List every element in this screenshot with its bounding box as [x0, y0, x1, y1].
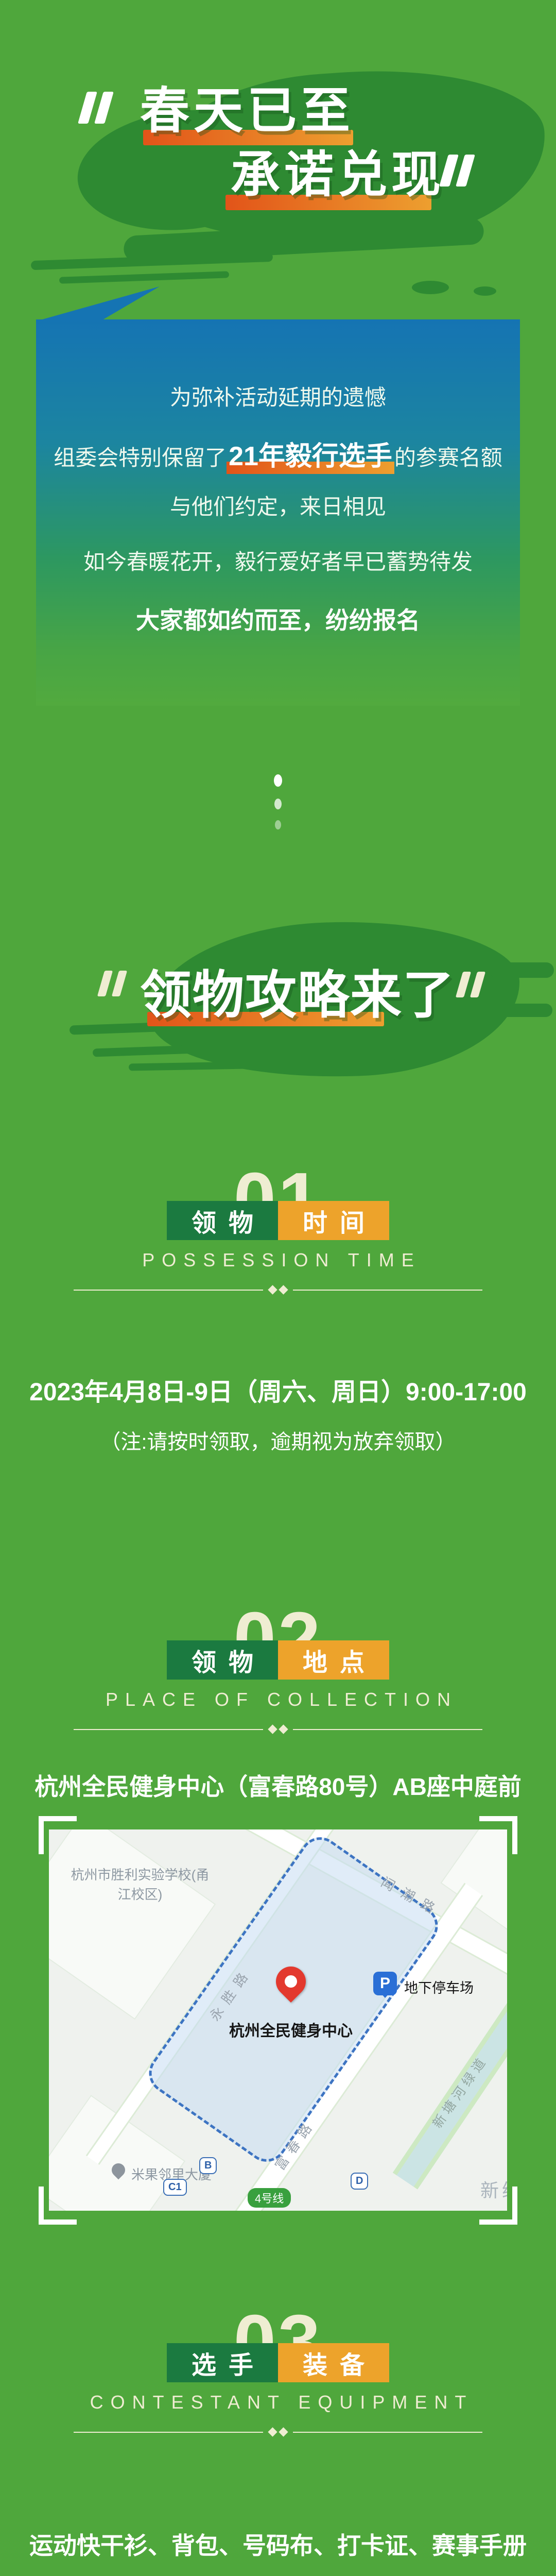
section-tag-right: 时间 [278, 1201, 389, 1240]
section-tag-left: 选手 [167, 2343, 278, 2382]
pickup-time-note: （注:请按时领取，逾期视为放弃领取） [0, 1425, 556, 1455]
close-quote-icon [444, 155, 471, 187]
section-header-03: 03 选手 装备 CONTESTANT EQUIPMENT [0, 2304, 556, 2435]
section-tags: 选手 装备 [167, 2343, 389, 2382]
section-divider [74, 1726, 482, 1733]
map-label-xinlv: 新绿 [480, 2176, 507, 2202]
metro-exit-c1: C1 [163, 2179, 187, 2196]
dot [275, 820, 281, 829]
speech-tail [39, 286, 160, 320]
map[interactable]: 杭州市胜利实验学校(甬江校区) 闻潮路 永胜路 富春路 新塘河绿道 新绿 杭州全… [49, 1829, 507, 2211]
section-subtitle: PLACE OF COLLECTION [98, 1689, 458, 1710]
intro-line2-suffix: 的参赛名额 [394, 446, 502, 470]
intro-line: 组委会特别保留了21年毅行选手的参赛名额 [36, 434, 520, 473]
open-quote-icon [101, 971, 124, 996]
intro-highlight: 21年毅行选手 [227, 434, 394, 473]
map-label-school: 杭州市胜利实验学校(甬江校区) [71, 1866, 210, 1904]
metro-line-badge: 4号线 [248, 2188, 291, 2208]
brush-stroke [412, 281, 449, 294]
section-divider [74, 1286, 482, 1293]
brush-stroke [59, 271, 229, 284]
dot [274, 799, 282, 809]
map-label-parking: 地下停车场 [404, 1977, 474, 1997]
parking-pin-icon[interactable]: P [373, 1972, 397, 1995]
section-tag-left: 领物 [167, 1201, 278, 1240]
map-frame: 杭州市胜利实验学校(甬江校区) 闻潮路 永胜路 富春路 新塘河绿道 新绿 杭州全… [39, 1816, 517, 2225]
brush-stroke [474, 286, 496, 296]
equipment-line1: 运动快干衫、背包、号码布、打卡证、赛事手册 [0, 2527, 556, 2561]
open-quote-icon [82, 92, 109, 124]
section-subtitle: POSSESSION TIME [135, 1249, 421, 1271]
pickup-address: 杭州全民健身中心（富春路80号）AB座中庭前 [0, 1768, 556, 1802]
intro-line2-prefix: 组委会特别保留了 [54, 446, 227, 470]
intro-line: 为弥补活动延期的遗憾 [36, 380, 520, 412]
section-divider [74, 2429, 482, 2435]
brush-stroke [492, 1004, 552, 1017]
section-tags: 领物 时间 [167, 1201, 389, 1240]
close-quote-icon [459, 972, 482, 997]
section-tags: 领物 地点 [167, 1640, 389, 1680]
intro-line: 与他们约定，来日相见 [36, 489, 520, 521]
hero-line1: 春天已至 [140, 87, 354, 136]
section-header-02: 02 领物 地点 PLACE OF COLLECTION [0, 1601, 556, 1733]
metro-exit-b: B [199, 2157, 217, 2174]
poster-page: 春天已至 承诺兑现 为弥补活动延期的遗憾 组委会特别保留了21年毅行选手的参赛名… [0, 0, 556, 2576]
dot [274, 774, 282, 787]
intro-line: 大家都如约而至，纷纷报名 [36, 602, 520, 636]
hero-line2: 承诺兑现 [231, 150, 445, 200]
brush-stroke [489, 962, 554, 978]
section-tag-right: 地点 [278, 1640, 389, 1680]
section-tag-left: 领物 [167, 1640, 278, 1680]
section-header-01: 01 领物 时间 POSSESSION TIME [0, 1162, 556, 1293]
guide-title: 领物攻略来了 [140, 970, 455, 1021]
intro-line: 如今春暖花开，毅行爱好者早已蓄势待发 [36, 545, 520, 576]
pickup-time: 2023年4月8日-9日（周六、周日）9:00-17:00 [0, 1371, 556, 1408]
section-subtitle: CONTESTANT EQUIPMENT [83, 2392, 474, 2413]
metro-exit-d: D [351, 2173, 368, 2190]
map-block [49, 1829, 216, 2020]
section-tag-right: 装备 [278, 2343, 389, 2382]
map-label-venue: 杭州全民健身中心 [208, 2018, 373, 2041]
